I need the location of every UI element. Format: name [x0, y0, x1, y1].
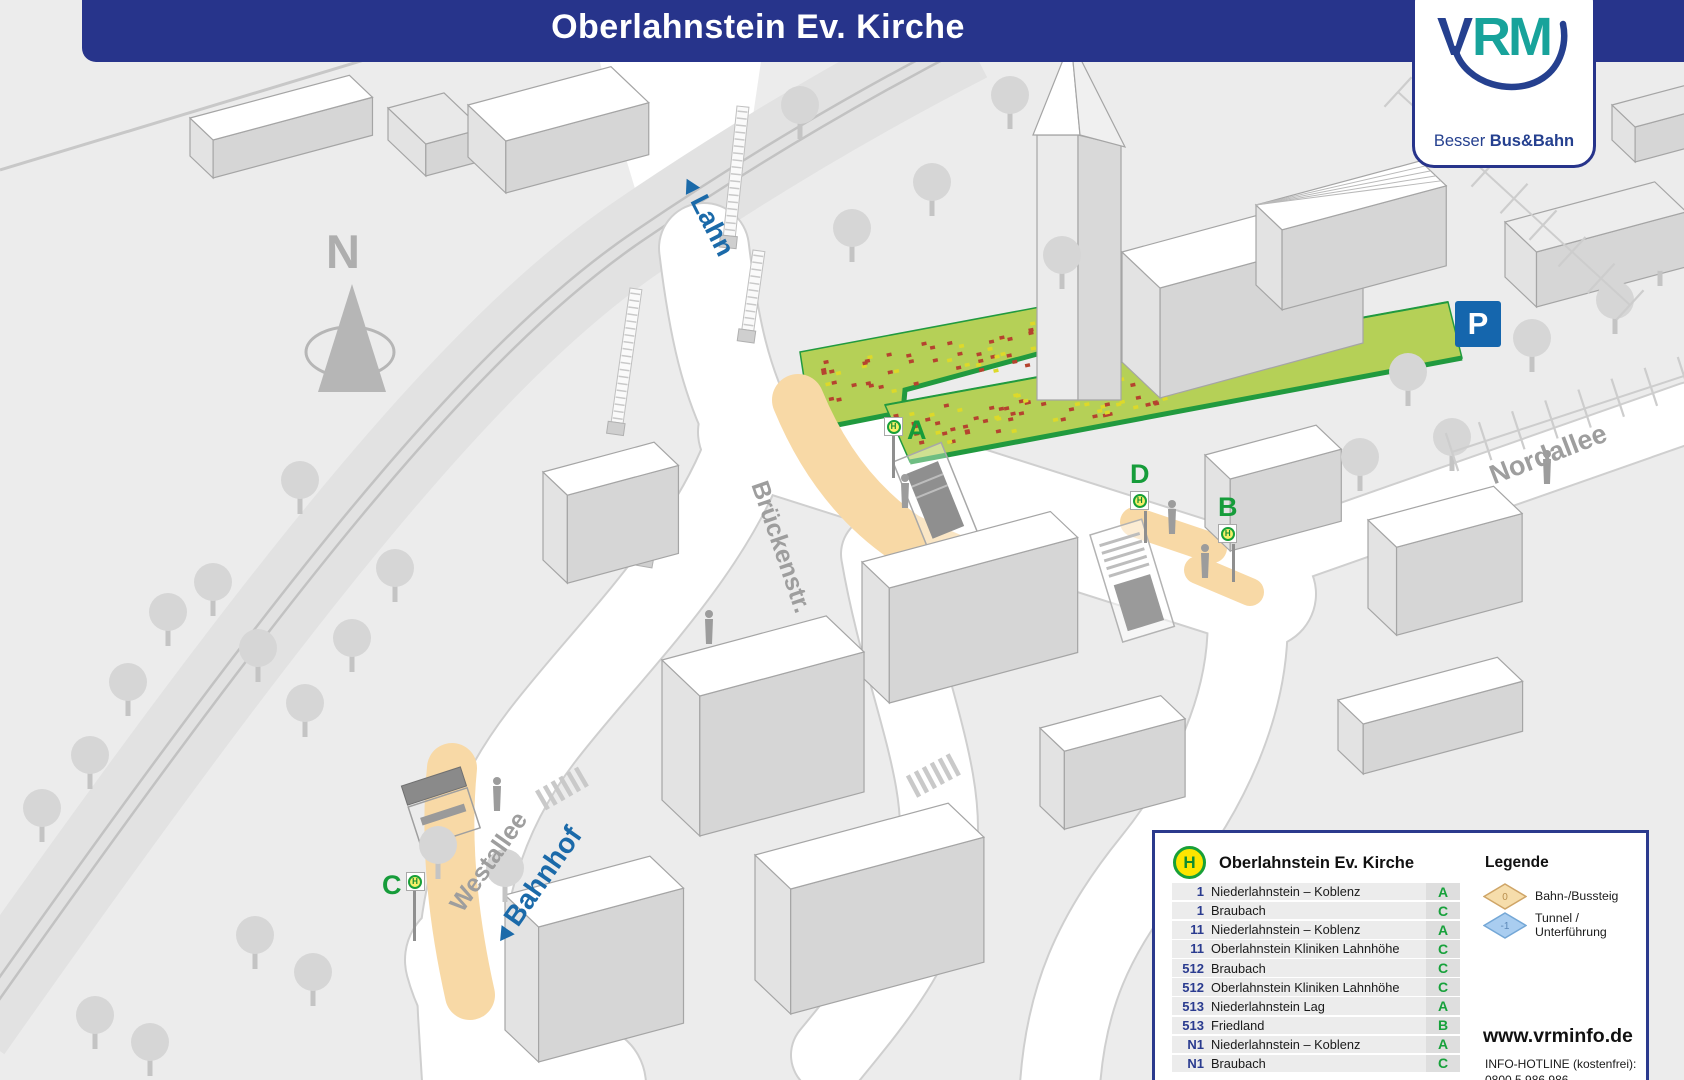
- hotline-label: INFO-HOTLINE (kostenfrei):: [1485, 1057, 1636, 1071]
- legend-item-platform: 0 Bahn-/Bussteig: [1483, 883, 1618, 910]
- route-platform-letter: C: [1426, 978, 1460, 995]
- sign-pole: [1144, 511, 1147, 543]
- route-row: 512 Braubach C: [1172, 959, 1460, 976]
- route-platform-letter: C: [1426, 940, 1460, 957]
- legend-title: Legende: [1485, 854, 1549, 872]
- route-row: 11 Oberlahnstein Kliniken Lahnhöhe C: [1172, 940, 1460, 957]
- route-line-number: 513: [1172, 999, 1204, 1014]
- h-symbol: H: [1221, 527, 1235, 541]
- page-title: Oberlahnstein Ev. Kirche: [82, 8, 1434, 47]
- h-symbol: H: [1133, 494, 1147, 508]
- stop-letter-a: A: [907, 417, 927, 444]
- route-destination: Braubach: [1204, 961, 1426, 976]
- route-destination: Niederlahnstein Lag: [1204, 999, 1426, 1014]
- legend-panel: H Oberlahnstein Ev. Kirche Legende 1 Nie…: [1152, 830, 1649, 1080]
- route-platform-letter: A: [1426, 1036, 1460, 1053]
- haltestelle-sign-icon: H: [1130, 491, 1149, 510]
- sign-pole: [413, 891, 416, 941]
- hotline-number: 0800 5 986 986: [1485, 1073, 1568, 1080]
- route-destination: Niederlahnstein – Koblenz: [1204, 1037, 1426, 1052]
- route-row: 1 Niederlahnstein – Koblenz A: [1172, 883, 1460, 900]
- platform-diamond-icon: 0: [1483, 883, 1527, 910]
- route-line-number: N1: [1172, 1037, 1204, 1052]
- route-row: 513 Friedland B: [1172, 1017, 1460, 1034]
- h-symbol: H: [408, 875, 422, 889]
- route-line-number: N1: [1172, 1056, 1204, 1071]
- website-text: www.vrminfo.de: [1483, 1025, 1633, 1048]
- legend-item-label: Bahn-/Bussteig: [1535, 889, 1618, 903]
- haltestelle-sign-icon: H: [1218, 524, 1237, 543]
- station-area-map: Oberlahnstein Ev. Kirche V RM Besser Bus…: [0, 0, 1684, 1080]
- route-row: 512 Oberlahnstein Kliniken Lahnhöhe C: [1172, 978, 1460, 995]
- route-line-number: 1: [1172, 884, 1204, 899]
- h-symbol: H: [887, 420, 901, 434]
- haltestelle-sign-icon: H: [884, 417, 903, 436]
- route-platform-letter: A: [1426, 997, 1460, 1014]
- route-line-number: 1: [1172, 903, 1204, 918]
- route-list: 1 Niederlahnstein – Koblenz A 1 Braubach…: [1172, 883, 1460, 1074]
- bus-stop-c: C H: [382, 872, 425, 899]
- tagline-regular: Besser: [1434, 132, 1490, 150]
- route-line-number: 11: [1172, 941, 1204, 956]
- vrm-logo: V RM Besser Bus&Bahn: [1412, 0, 1596, 168]
- logo-letter-v: V: [1437, 7, 1473, 67]
- route-destination: Braubach: [1204, 1056, 1426, 1071]
- svg-text:-1: -1: [1501, 921, 1510, 932]
- vrm-logo-mark: V RM: [1431, 5, 1583, 101]
- bus-stop-b: B H: [1218, 494, 1238, 543]
- route-destination: Niederlahnstein – Koblenz: [1204, 884, 1426, 899]
- stop-letter-b: B: [1218, 494, 1238, 521]
- stop-letter-d: D: [1130, 461, 1150, 488]
- compass-north-label: N: [326, 228, 360, 275]
- tagline-bold: Bus&Bahn: [1490, 132, 1574, 150]
- parking-sign: P: [1455, 301, 1501, 347]
- haltestelle-sign-icon: H: [406, 872, 425, 891]
- route-platform-letter: A: [1426, 883, 1460, 900]
- route-row: 11 Niederlahnstein – Koblenz A: [1172, 921, 1460, 938]
- tunnel-diamond-icon: -1: [1483, 912, 1527, 939]
- sign-pole: [1232, 544, 1235, 582]
- bus-stop-a: H A: [884, 417, 927, 444]
- bus-stop-d: D H: [1130, 461, 1150, 510]
- route-destination: Oberlahnstein Kliniken Lahnhöhe: [1204, 941, 1426, 956]
- svg-text:0: 0: [1502, 892, 1508, 903]
- legend-item-tunnel: -1 Tunnel / Unterführung: [1483, 911, 1607, 939]
- route-row: 513 Niederlahnstein Lag A: [1172, 997, 1460, 1014]
- route-row: 1 Braubach C: [1172, 902, 1460, 919]
- logo-letters-rm: RM: [1472, 7, 1550, 67]
- logo-tagline: Besser Bus&Bahn: [1415, 132, 1593, 151]
- route-platform-letter: C: [1426, 1055, 1460, 1072]
- sign-pole: [892, 436, 895, 478]
- legend-item-label: Tunnel / Unterführung: [1535, 911, 1607, 939]
- route-line-number: 513: [1172, 1018, 1204, 1033]
- route-platform-letter: C: [1426, 959, 1460, 976]
- route-row: N1 Niederlahnstein – Koblenz A: [1172, 1036, 1460, 1053]
- route-destination: Niederlahnstein – Koblenz: [1204, 922, 1426, 937]
- route-destination: Braubach: [1204, 903, 1426, 918]
- route-platform-letter: C: [1426, 902, 1460, 919]
- route-platform-letter: A: [1426, 921, 1460, 938]
- route-destination: Friedland: [1204, 1018, 1426, 1033]
- route-row: N1 Braubach C: [1172, 1055, 1460, 1072]
- route-line-number: 11: [1172, 922, 1204, 937]
- stop-letter-c: C: [382, 872, 402, 899]
- route-line-number: 512: [1172, 980, 1204, 995]
- route-line-number: 512: [1172, 961, 1204, 976]
- route-destination: Oberlahnstein Kliniken Lahnhöhe: [1204, 980, 1426, 995]
- legend-stop-name: Oberlahnstein Ev. Kirche: [1219, 854, 1414, 873]
- haltestelle-logo-icon: H: [1173, 846, 1206, 879]
- route-platform-letter: B: [1426, 1017, 1460, 1034]
